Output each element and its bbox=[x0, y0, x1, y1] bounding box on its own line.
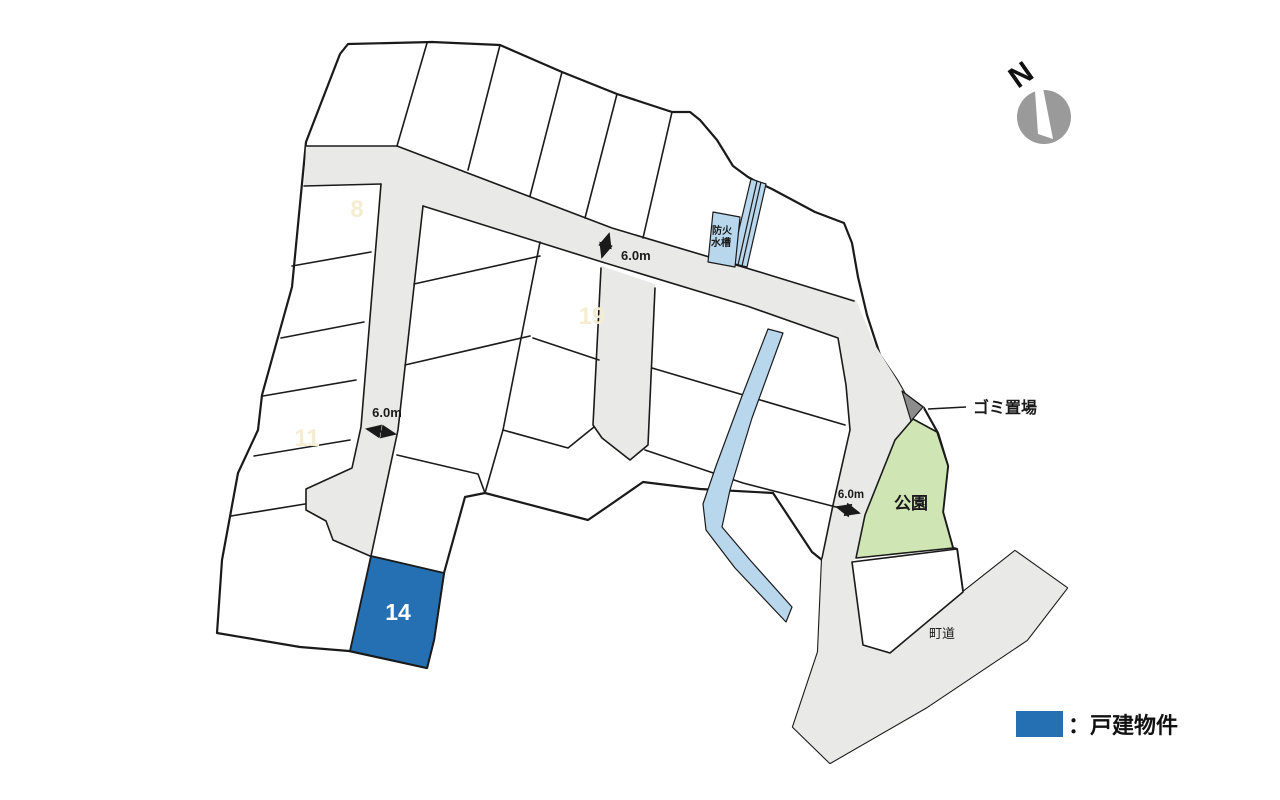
town-road-label: 町道 bbox=[929, 626, 955, 641]
road-width-left-label: 6.0m bbox=[372, 405, 402, 420]
lot-14-label: 14 bbox=[385, 599, 411, 625]
lot-11-label: 11 bbox=[294, 425, 319, 452]
subdivision-map: 防火 水槽 14 8 11 19 6.0m 6.0m 6.0m 公園 ゴミ置場 … bbox=[0, 0, 1280, 800]
lot-8-label: 8 bbox=[350, 196, 363, 223]
north-arrow-icon: N bbox=[1003, 55, 1071, 144]
garbage-label: ゴミ置場 bbox=[973, 398, 1037, 417]
garbage-leader-line bbox=[928, 407, 966, 409]
park-label: 公園 bbox=[894, 494, 928, 513]
road-width-main-label: 6.0m bbox=[621, 248, 651, 263]
subdivision-map-page: 防火 水槽 14 8 11 19 6.0m 6.0m 6.0m 公園 ゴミ置場 … bbox=[0, 0, 1280, 800]
road-width-park-label: 6.0m bbox=[838, 489, 864, 501]
fire-water-tank-label-line1: 防火 bbox=[712, 224, 733, 237]
north-label: N bbox=[1003, 55, 1040, 94]
legend-label: ：戸建物件 bbox=[1068, 713, 1178, 738]
legend-swatch bbox=[1016, 711, 1063, 737]
legend: ：戸建物件 bbox=[1016, 711, 1178, 738]
road-center-vertical bbox=[593, 266, 655, 460]
fire-water-tank-label-line2: 水槽 bbox=[710, 236, 731, 249]
lot-19-label: 19 bbox=[579, 303, 606, 330]
